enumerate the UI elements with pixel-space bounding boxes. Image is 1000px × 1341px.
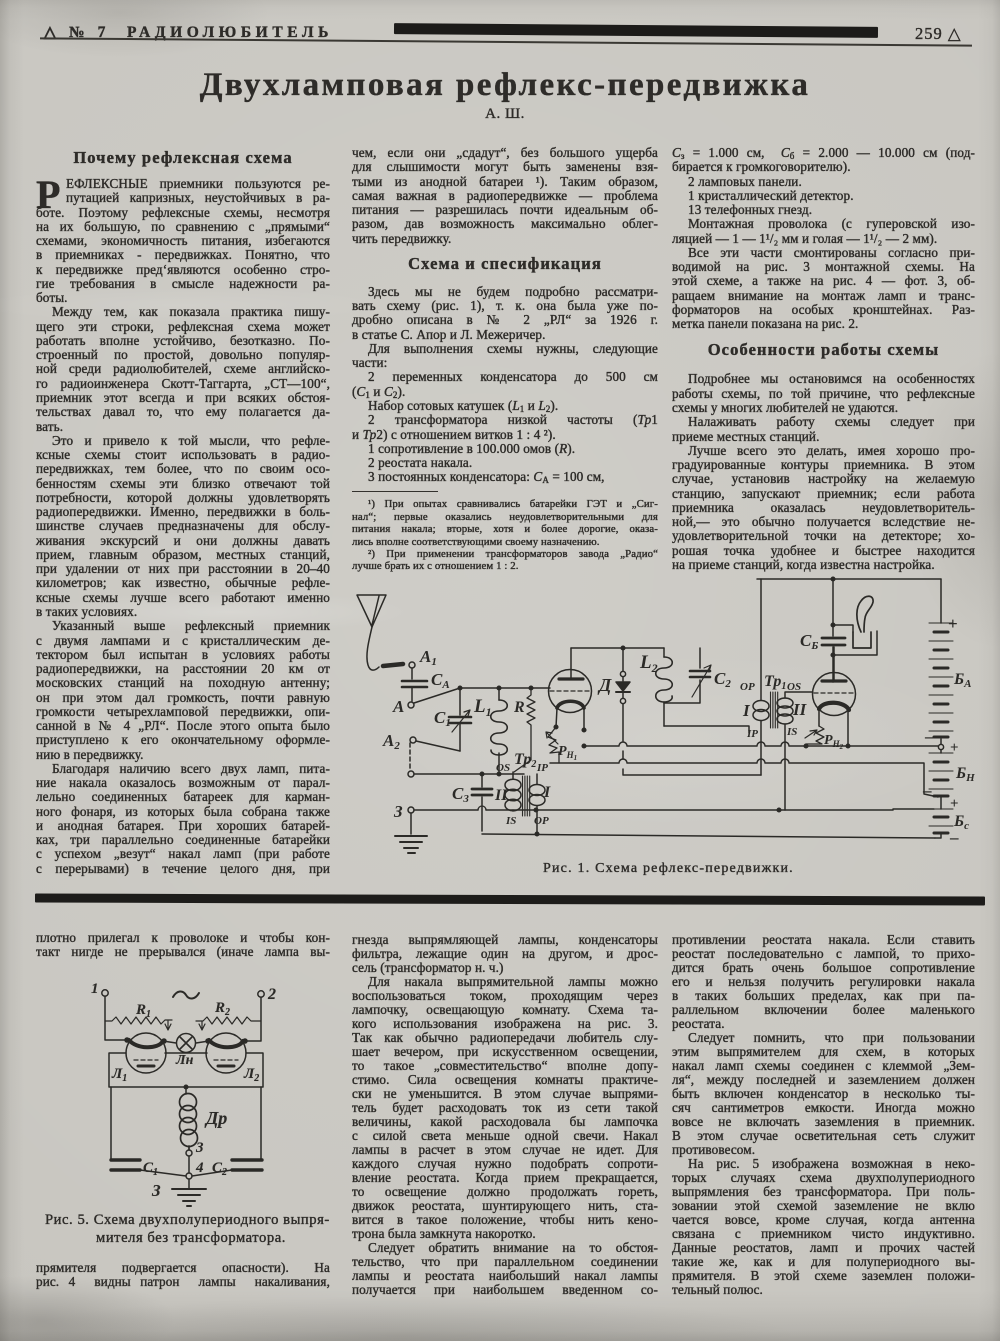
svg-text:ОР: ОР <box>534 815 549 827</box>
svg-text:IР: IР <box>746 728 758 740</box>
svg-text:L1: L1 <box>473 696 492 719</box>
svg-text:1: 1 <box>91 981 99 997</box>
svg-text:–: – <box>949 828 959 847</box>
svg-text:Тр1: Тр1 <box>764 673 786 692</box>
svg-text:IР: IР <box>536 762 548 774</box>
svg-text:R: R <box>513 699 525 716</box>
svg-text:L2: L2 <box>639 652 658 675</box>
svg-text:РН2: РН2 <box>824 733 844 751</box>
svg-text:БН: БН <box>955 765 975 784</box>
svg-text:С1: С1 <box>143 1160 158 1178</box>
svg-text:ОS: ОS <box>496 762 510 774</box>
svg-text:Тр2: Тр2 <box>514 751 536 770</box>
svg-text:+: + <box>950 740 959 756</box>
svg-text:R1: R1 <box>135 1002 151 1020</box>
svg-text:СБ: СБ <box>800 631 818 652</box>
svg-text:2: 2 <box>267 986 276 1003</box>
svg-text:II: II <box>792 700 808 719</box>
svg-text:А1: А1 <box>419 647 437 668</box>
svg-text:II: II <box>494 787 508 804</box>
svg-text:Л2: Л2 <box>243 1066 259 1084</box>
svg-text:С2: С2 <box>714 669 731 690</box>
svg-text:I: I <box>742 701 751 720</box>
svg-text:Лн: Лн <box>175 1053 194 1068</box>
svg-text:R2: R2 <box>214 1000 230 1018</box>
svg-text:РН1: РН1 <box>558 744 577 762</box>
svg-text:З: З <box>151 1181 161 1200</box>
svg-text:–: – <box>924 727 934 746</box>
svg-text:ОР: ОР <box>740 681 755 693</box>
svg-text:ОS: ОS <box>787 681 801 693</box>
svg-text:С1: С1 <box>434 708 451 729</box>
svg-text:СА: СА <box>431 670 450 691</box>
svg-text:IS: IS <box>505 815 516 827</box>
svg-text:I: I <box>543 784 551 801</box>
svg-text:Д: Д <box>597 675 612 695</box>
svg-text:З: З <box>393 802 403 821</box>
svg-text:+: + <box>948 614 958 633</box>
svg-text:С3: С3 <box>452 784 469 805</box>
svg-text:4: 4 <box>195 1160 204 1176</box>
svg-text:Др: Др <box>204 1108 227 1128</box>
svg-text:БА: БА <box>953 671 972 690</box>
svg-text:IS: IS <box>786 726 797 738</box>
svg-text:–: – <box>922 781 932 800</box>
svg-text:С2: С2 <box>212 1160 227 1178</box>
svg-text:3: 3 <box>195 1140 204 1156</box>
svg-text:А: А <box>392 697 404 716</box>
svg-text:А2: А2 <box>382 731 400 752</box>
svg-text:+: + <box>950 796 959 812</box>
svg-text:Л1: Л1 <box>111 1066 127 1084</box>
